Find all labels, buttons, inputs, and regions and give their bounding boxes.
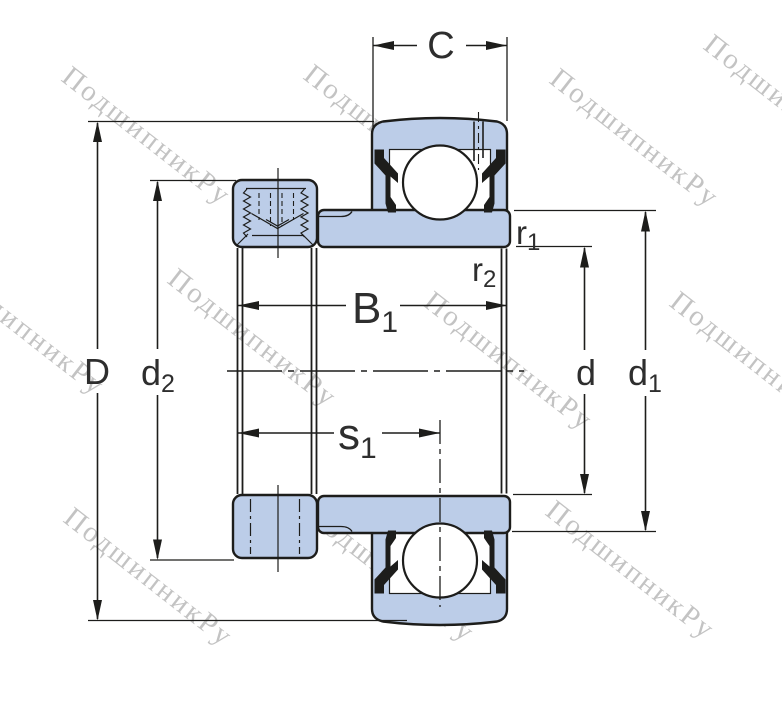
label-r2: r2 bbox=[472, 251, 496, 293]
watermark-text: ПодшипникРу bbox=[664, 285, 782, 437]
watermark-text: ПодшипникРу bbox=[544, 62, 726, 214]
arrowhead bbox=[238, 429, 259, 438]
label-d-bore: d bbox=[576, 352, 596, 393]
label-d1: d1 bbox=[628, 352, 662, 398]
watermark-text: ПодшипникРу bbox=[56, 60, 238, 212]
bearing-section-bottom bbox=[318, 496, 510, 625]
watermark-text: ПодшипникРу bbox=[698, 28, 782, 180]
arrowhead bbox=[580, 474, 589, 495]
arrowhead bbox=[419, 429, 440, 438]
bearing-section-top bbox=[318, 118, 510, 247]
arrowhead bbox=[580, 247, 589, 268]
locking-collar-bottom bbox=[233, 485, 317, 572]
label-c: C bbox=[427, 25, 454, 67]
bearing-technical-drawing: ПодшипникРу ПодшипникРу ПодшипникРу Подш… bbox=[0, 0, 782, 704]
watermark-text: ПодшипникРу bbox=[540, 494, 722, 646]
arrowhead bbox=[153, 540, 162, 561]
arrowhead bbox=[93, 600, 102, 621]
watermark-text: ПодшипникРу bbox=[418, 285, 600, 437]
arrowhead bbox=[486, 41, 507, 50]
arrowhead bbox=[373, 41, 394, 50]
locking-collar-top bbox=[233, 168, 317, 258]
arrowhead bbox=[153, 181, 162, 202]
label-r1: r1 bbox=[516, 214, 540, 256]
label-d2: d2 bbox=[141, 352, 175, 398]
arrowhead bbox=[93, 122, 102, 143]
bearing-drawing-page: ПодшипникРу ПодшипникРу ПодшипникРу Подш… bbox=[0, 0, 782, 704]
dimension-c: C bbox=[373, 25, 507, 127]
watermark-text: ПодшипникРу bbox=[58, 501, 240, 653]
arrowhead bbox=[486, 301, 507, 310]
label-d-outer: D bbox=[84, 351, 110, 392]
label-s1: s1 bbox=[338, 410, 377, 465]
collar-block-bottom bbox=[233, 495, 317, 558]
label-b1: B1 bbox=[352, 284, 398, 339]
dimension-d2: d2 bbox=[141, 181, 236, 561]
arrowhead bbox=[641, 511, 650, 532]
arrowhead bbox=[641, 211, 650, 232]
dimension-s1: s1 bbox=[238, 410, 440, 465]
